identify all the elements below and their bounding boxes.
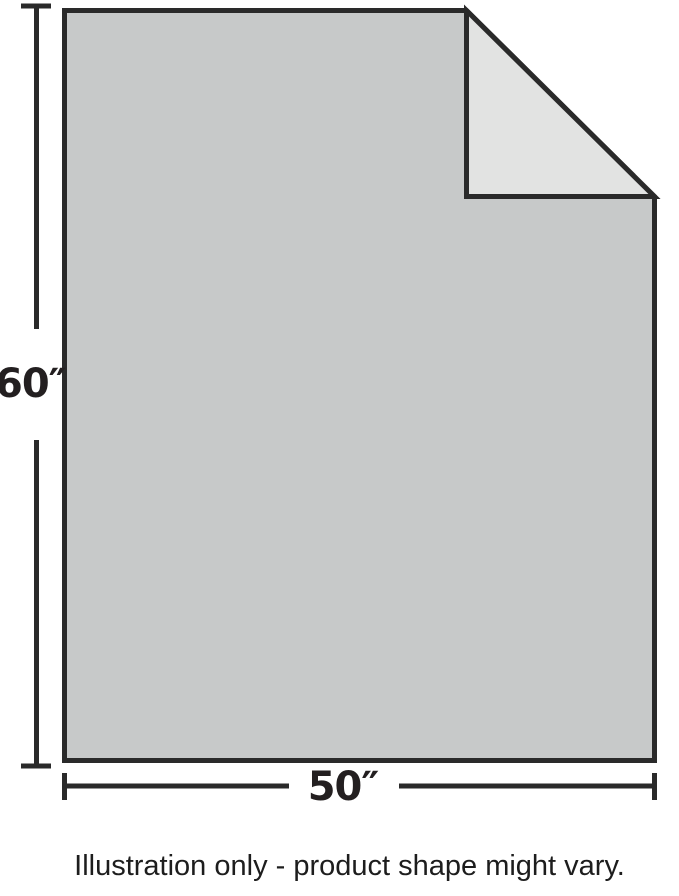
width-dimension-label: 50″ xyxy=(283,765,403,809)
height-dimension-label: 60″ xyxy=(0,362,59,406)
diagram-canvas xyxy=(0,0,679,896)
disclaimer-caption: Illustration only - product shape might … xyxy=(0,849,679,883)
folded-corner xyxy=(467,11,655,197)
product-dimension-illustration: 60″ 50″ Illustration only - product shap… xyxy=(0,0,679,896)
